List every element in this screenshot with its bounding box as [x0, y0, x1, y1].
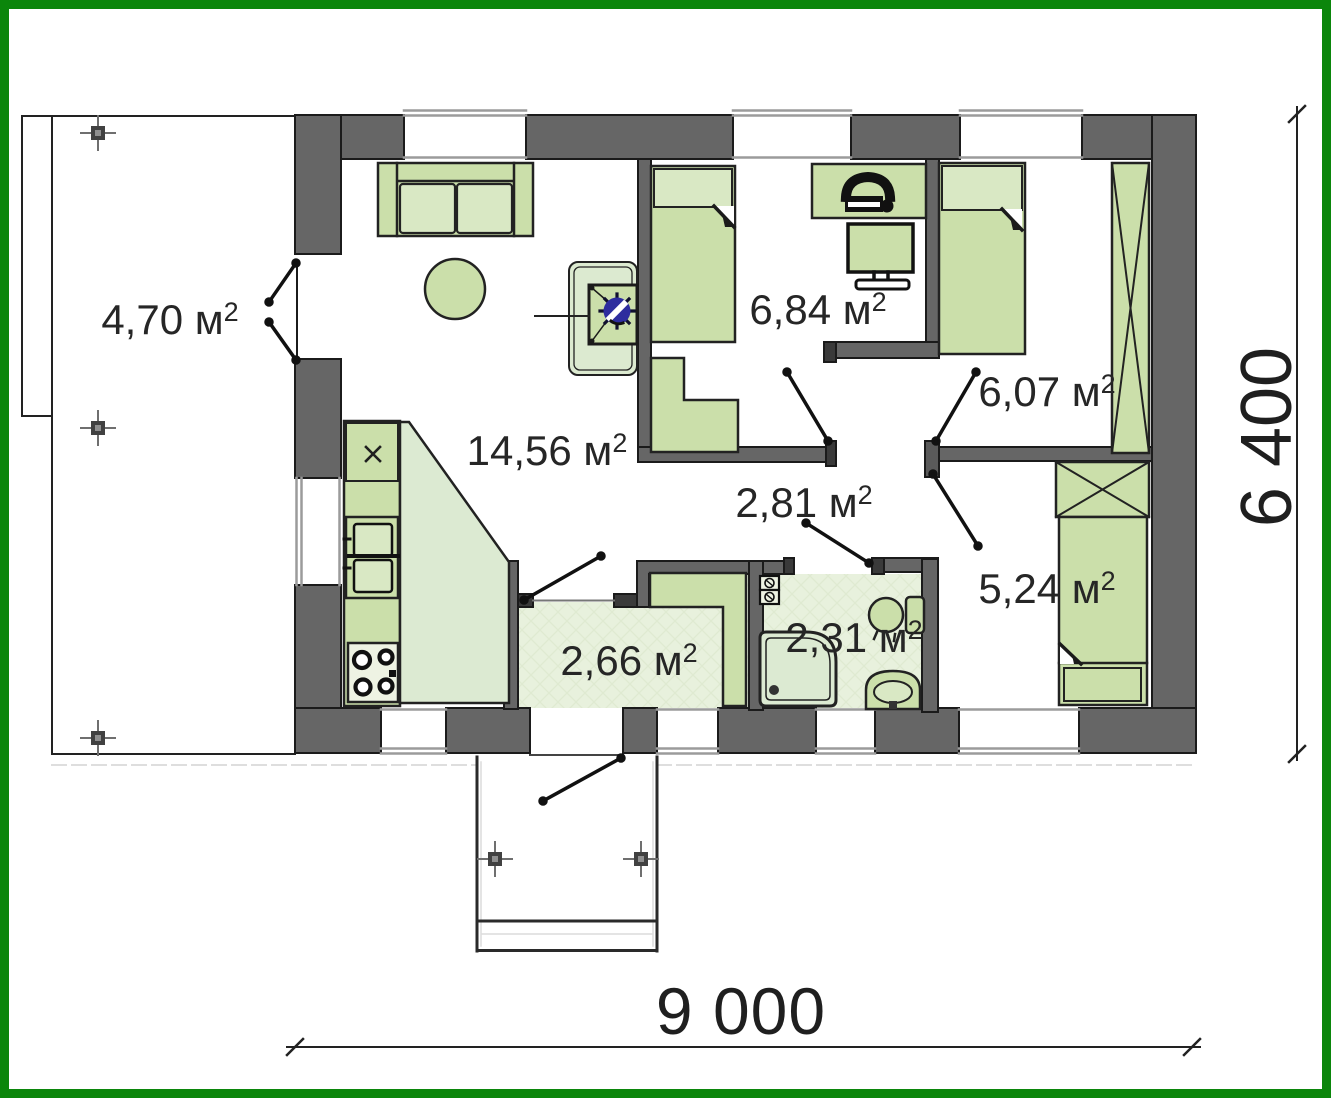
svg-text:4,70 м2: 4,70 м2 [101, 296, 238, 343]
svg-text:5,24 м2: 5,24 м2 [978, 565, 1115, 612]
svg-text:6,84 м2: 6,84 м2 [749, 286, 886, 333]
svg-text:6,07 м2: 6,07 м2 [978, 368, 1115, 415]
svg-text:14,56 м2: 14,56 м2 [467, 427, 628, 474]
svg-text:2,81 м2: 2,81 м2 [735, 479, 872, 526]
svg-text:6 400: 6 400 [1227, 347, 1307, 527]
svg-text:2,31 м2: 2,31 м2 [785, 614, 922, 661]
svg-text:9 000: 9 000 [656, 974, 826, 1048]
svg-text:2,66 м2: 2,66 м2 [560, 637, 697, 684]
